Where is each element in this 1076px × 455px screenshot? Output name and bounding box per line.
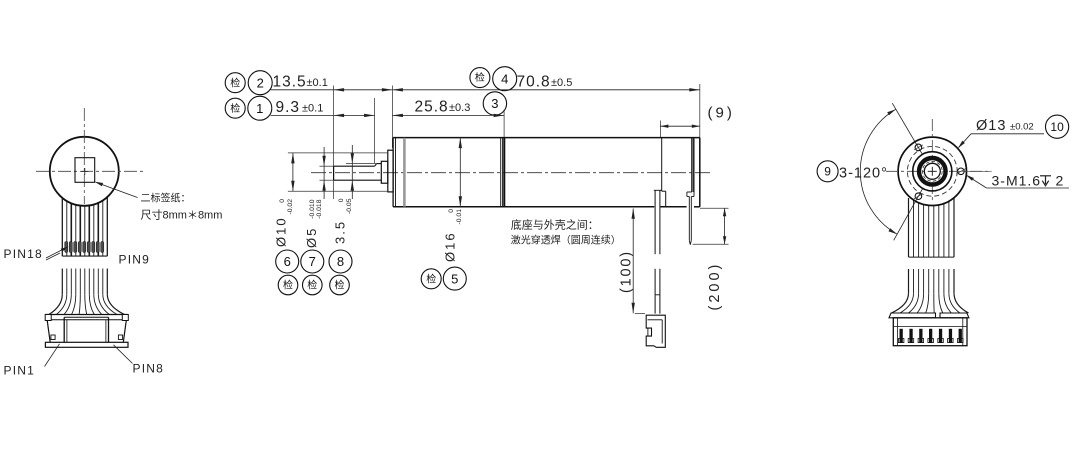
svg-text:-0.05: -0.05 [346,198,353,214]
svg-text:检: 检 [335,279,345,292]
svg-text:检: 检 [426,272,436,285]
svg-text:检: 检 [307,279,317,292]
svg-text:(100): (100) [619,250,635,293]
svg-text:2: 2 [257,75,264,90]
svg-text:PIN18: PIN18 [4,247,43,261]
svg-text:-0.01: -0.01 [456,209,463,225]
svg-text:25.8: 25.8 [415,99,449,116]
svg-text:±0.3: ±0.3 [449,102,470,114]
svg-text:13.5: 13.5 [273,74,307,91]
svg-text:9: 9 [824,165,831,179]
svg-text:70.8: 70.8 [517,74,551,91]
svg-text:0: 0 [448,209,455,213]
svg-text:(9): (9) [708,105,735,122]
svg-text:4: 4 [501,71,508,86]
svg-text:Ø10: Ø10 [274,216,289,247]
svg-text:3-120°: 3-120° [839,166,888,182]
svg-text:±0.02: ±0.02 [1010,122,1034,133]
svg-text:-0.010: -0.010 [309,199,316,218]
svg-text:底座与外壳之间：: 底座与外壳之间： [511,218,599,232]
svg-text:0: 0 [279,199,286,203]
svg-text:检: 检 [230,76,240,89]
svg-text:6: 6 [284,254,291,269]
svg-text:尺寸8mm＊8mm: 尺寸8mm＊8mm [141,208,223,222]
svg-text:3-M1.6: 3-M1.6 [992,173,1042,189]
svg-text:Ø16: Ø16 [443,231,458,262]
svg-text:8: 8 [337,254,344,269]
svg-text:PIN1: PIN1 [4,364,35,378]
svg-text:PIN9: PIN9 [119,253,150,267]
svg-text:二标签纸：: 二标签纸： [141,192,191,205]
svg-text:9.3: 9.3 [276,99,301,116]
svg-text:2: 2 [1056,173,1064,189]
svg-text:±0.1: ±0.1 [307,77,328,89]
svg-text:5: 5 [451,271,458,286]
svg-text:Ø5: Ø5 [304,227,319,248]
svg-text:激光穿透焊（圆周连续）: 激光穿透焊（圆周连续） [511,234,621,247]
svg-text:±0.5: ±0.5 [551,77,572,89]
svg-text:7: 7 [309,254,316,269]
svg-text:0: 0 [338,198,345,202]
svg-text:检: 检 [283,279,293,292]
svg-text:3.5: 3.5 [333,220,348,244]
svg-text:1: 1 [256,101,263,116]
svg-text:-0.02: -0.02 [287,199,294,215]
svg-text:±0.1: ±0.1 [302,103,323,115]
svg-text:(200): (200) [707,262,723,311]
svg-text:3: 3 [491,96,498,111]
svg-text:10: 10 [1050,120,1064,134]
svg-text:检: 检 [475,71,485,84]
svg-text:-0.018: -0.018 [316,199,323,218]
svg-text:Ø13: Ø13 [976,118,1006,134]
svg-text:PIN8: PIN8 [133,362,164,376]
svg-text:检: 检 [230,102,240,115]
